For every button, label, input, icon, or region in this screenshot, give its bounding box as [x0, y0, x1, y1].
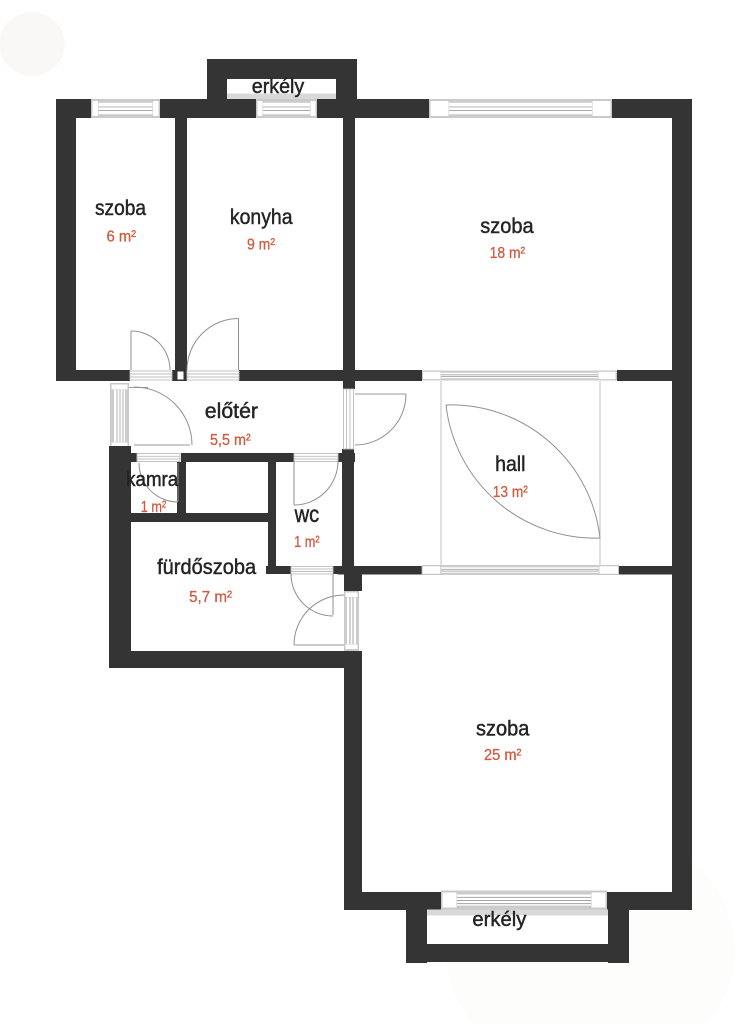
svg-text:szoba: szoba: [476, 718, 530, 741]
svg-text:kamra: kamra: [126, 469, 179, 491]
svg-text:wc: wc: [294, 501, 319, 527]
svg-text:9 m²: 9 m²: [247, 237, 276, 254]
svg-text:erkély: erkély: [252, 76, 305, 98]
svg-text:hall: hall: [495, 453, 525, 476]
svg-text:konyha: konyha: [230, 206, 293, 229]
svg-text:erkély: erkély: [472, 909, 526, 931]
svg-text:szoba: szoba: [95, 197, 146, 220]
svg-text:25 m²: 25 m²: [484, 747, 522, 764]
svg-text:fürdőszoba: fürdőszoba: [157, 556, 256, 579]
svg-text:13 m²: 13 m²: [493, 484, 529, 501]
svg-text:1 m²: 1 m²: [141, 499, 167, 516]
svg-text:5,7 m²: 5,7 m²: [189, 589, 233, 606]
svg-text:18 m²: 18 m²: [490, 245, 526, 262]
svg-text:előtér: előtér: [205, 400, 258, 423]
svg-text:6 m²: 6 m²: [107, 229, 137, 246]
svg-text:1 m²: 1 m²: [294, 534, 320, 551]
svg-text:szoba: szoba: [480, 215, 534, 238]
svg-text:5,5 m²: 5,5 m²: [210, 432, 251, 449]
